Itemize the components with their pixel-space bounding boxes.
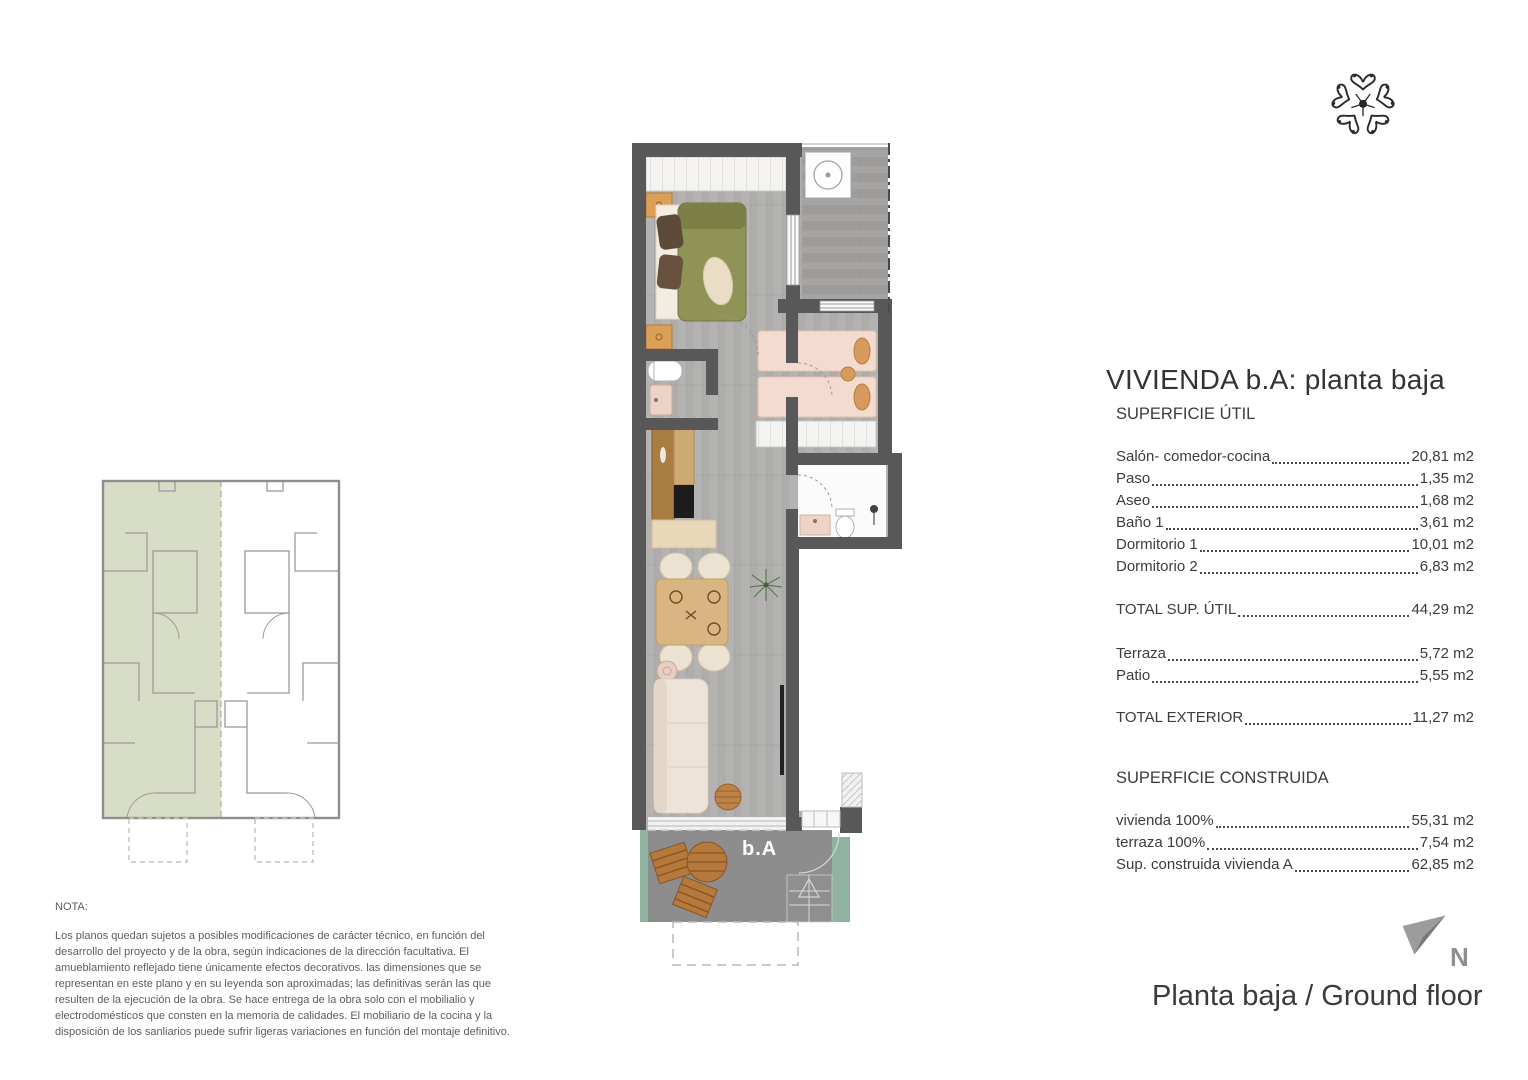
surface-panel: VIVIENDA b.A: planta baja SUPERFICIE ÚTI… xyxy=(1106,364,1474,876)
terrace-planter-right xyxy=(832,837,850,922)
total-util-row: TOTAL SUP. ÚTIL44,29 m2 xyxy=(1116,599,1474,621)
keyplan-drawing xyxy=(95,473,347,873)
dot-leader xyxy=(1166,528,1418,530)
floorplan-drawing: b.A xyxy=(590,85,920,1025)
table-row: Terraza5,72 m2 xyxy=(1116,643,1474,665)
note-body: Los planos quedan sujetos a posibles mod… xyxy=(55,929,517,1041)
dot-leader xyxy=(1152,484,1418,486)
table-row: vivienda 100%55,31 m2 xyxy=(1116,810,1474,832)
vent-grate xyxy=(842,773,862,807)
keyplan-highlighted-unit xyxy=(103,481,221,818)
dot-leader xyxy=(1200,550,1410,552)
floor-caption: Planta baja / Ground floor xyxy=(1152,980,1482,1013)
dot-leader xyxy=(1216,826,1410,828)
ac-unit xyxy=(805,152,851,198)
dot-leader xyxy=(1238,615,1409,617)
logo-flower-icon xyxy=(1330,64,1396,140)
dot-leader xyxy=(1152,506,1418,508)
wardrobe-bedroom1 xyxy=(646,157,786,191)
floor-plan-sheet: b.A VIVIENDA b.A: planta baja SUPERFICIE… xyxy=(0,0,1528,1080)
table-row: Patio5,55 m2 xyxy=(1116,665,1474,687)
entry-door xyxy=(802,811,840,827)
table-row: Sup. construida vivienda A62,85 m2 xyxy=(1116,854,1474,876)
page-title: VIVIENDA b.A: planta baja xyxy=(1106,364,1474,396)
note-heading: NOTA: xyxy=(55,901,517,913)
table-row: terraza 100%7,54 m2 xyxy=(1116,832,1474,854)
table-row: Aseo1,68 m2 xyxy=(1116,490,1474,512)
terrace-planter-left xyxy=(640,830,648,922)
table-row: Dormitorio 110,01 m2 xyxy=(1116,534,1474,556)
unit-label: b.A xyxy=(742,838,777,860)
dot-leader xyxy=(1152,681,1418,683)
section-header-construida: SUPERFICIE CONSTRUIDA xyxy=(1116,769,1474,788)
north-arrow-icon xyxy=(1400,914,1452,960)
table-row: Salón- comedor-cocina20,81 m2 xyxy=(1116,446,1474,468)
dot-leader xyxy=(1295,870,1410,872)
table-row: Dormitorio 26,83 m2 xyxy=(1116,556,1474,578)
wardrobe-bedroom2 xyxy=(756,421,876,447)
north-letter: N xyxy=(1450,942,1469,973)
total-exterior-row: TOTAL EXTERIOR11,27 m2 xyxy=(1116,707,1474,729)
dot-leader xyxy=(1200,572,1418,574)
dot-leader xyxy=(1207,848,1418,850)
note-block: NOTA: Los planos quedan sujetos a posibl… xyxy=(55,901,517,1041)
dot-leader xyxy=(1272,462,1409,464)
dot-leader xyxy=(1168,659,1418,661)
table-row: Paso1,35 m2 xyxy=(1116,468,1474,490)
projection-dashed-outline xyxy=(673,922,798,965)
section-header-util: SUPERFICIE ÚTIL xyxy=(1116,405,1474,424)
table-row: Baño 13,61 m2 xyxy=(1116,512,1474,534)
stairs xyxy=(787,875,832,922)
dot-leader xyxy=(1245,723,1410,725)
tv-unit xyxy=(780,685,784,775)
surface-table: Salón- comedor-cocina20,81 m2 Paso1,35 m… xyxy=(1116,446,1474,876)
